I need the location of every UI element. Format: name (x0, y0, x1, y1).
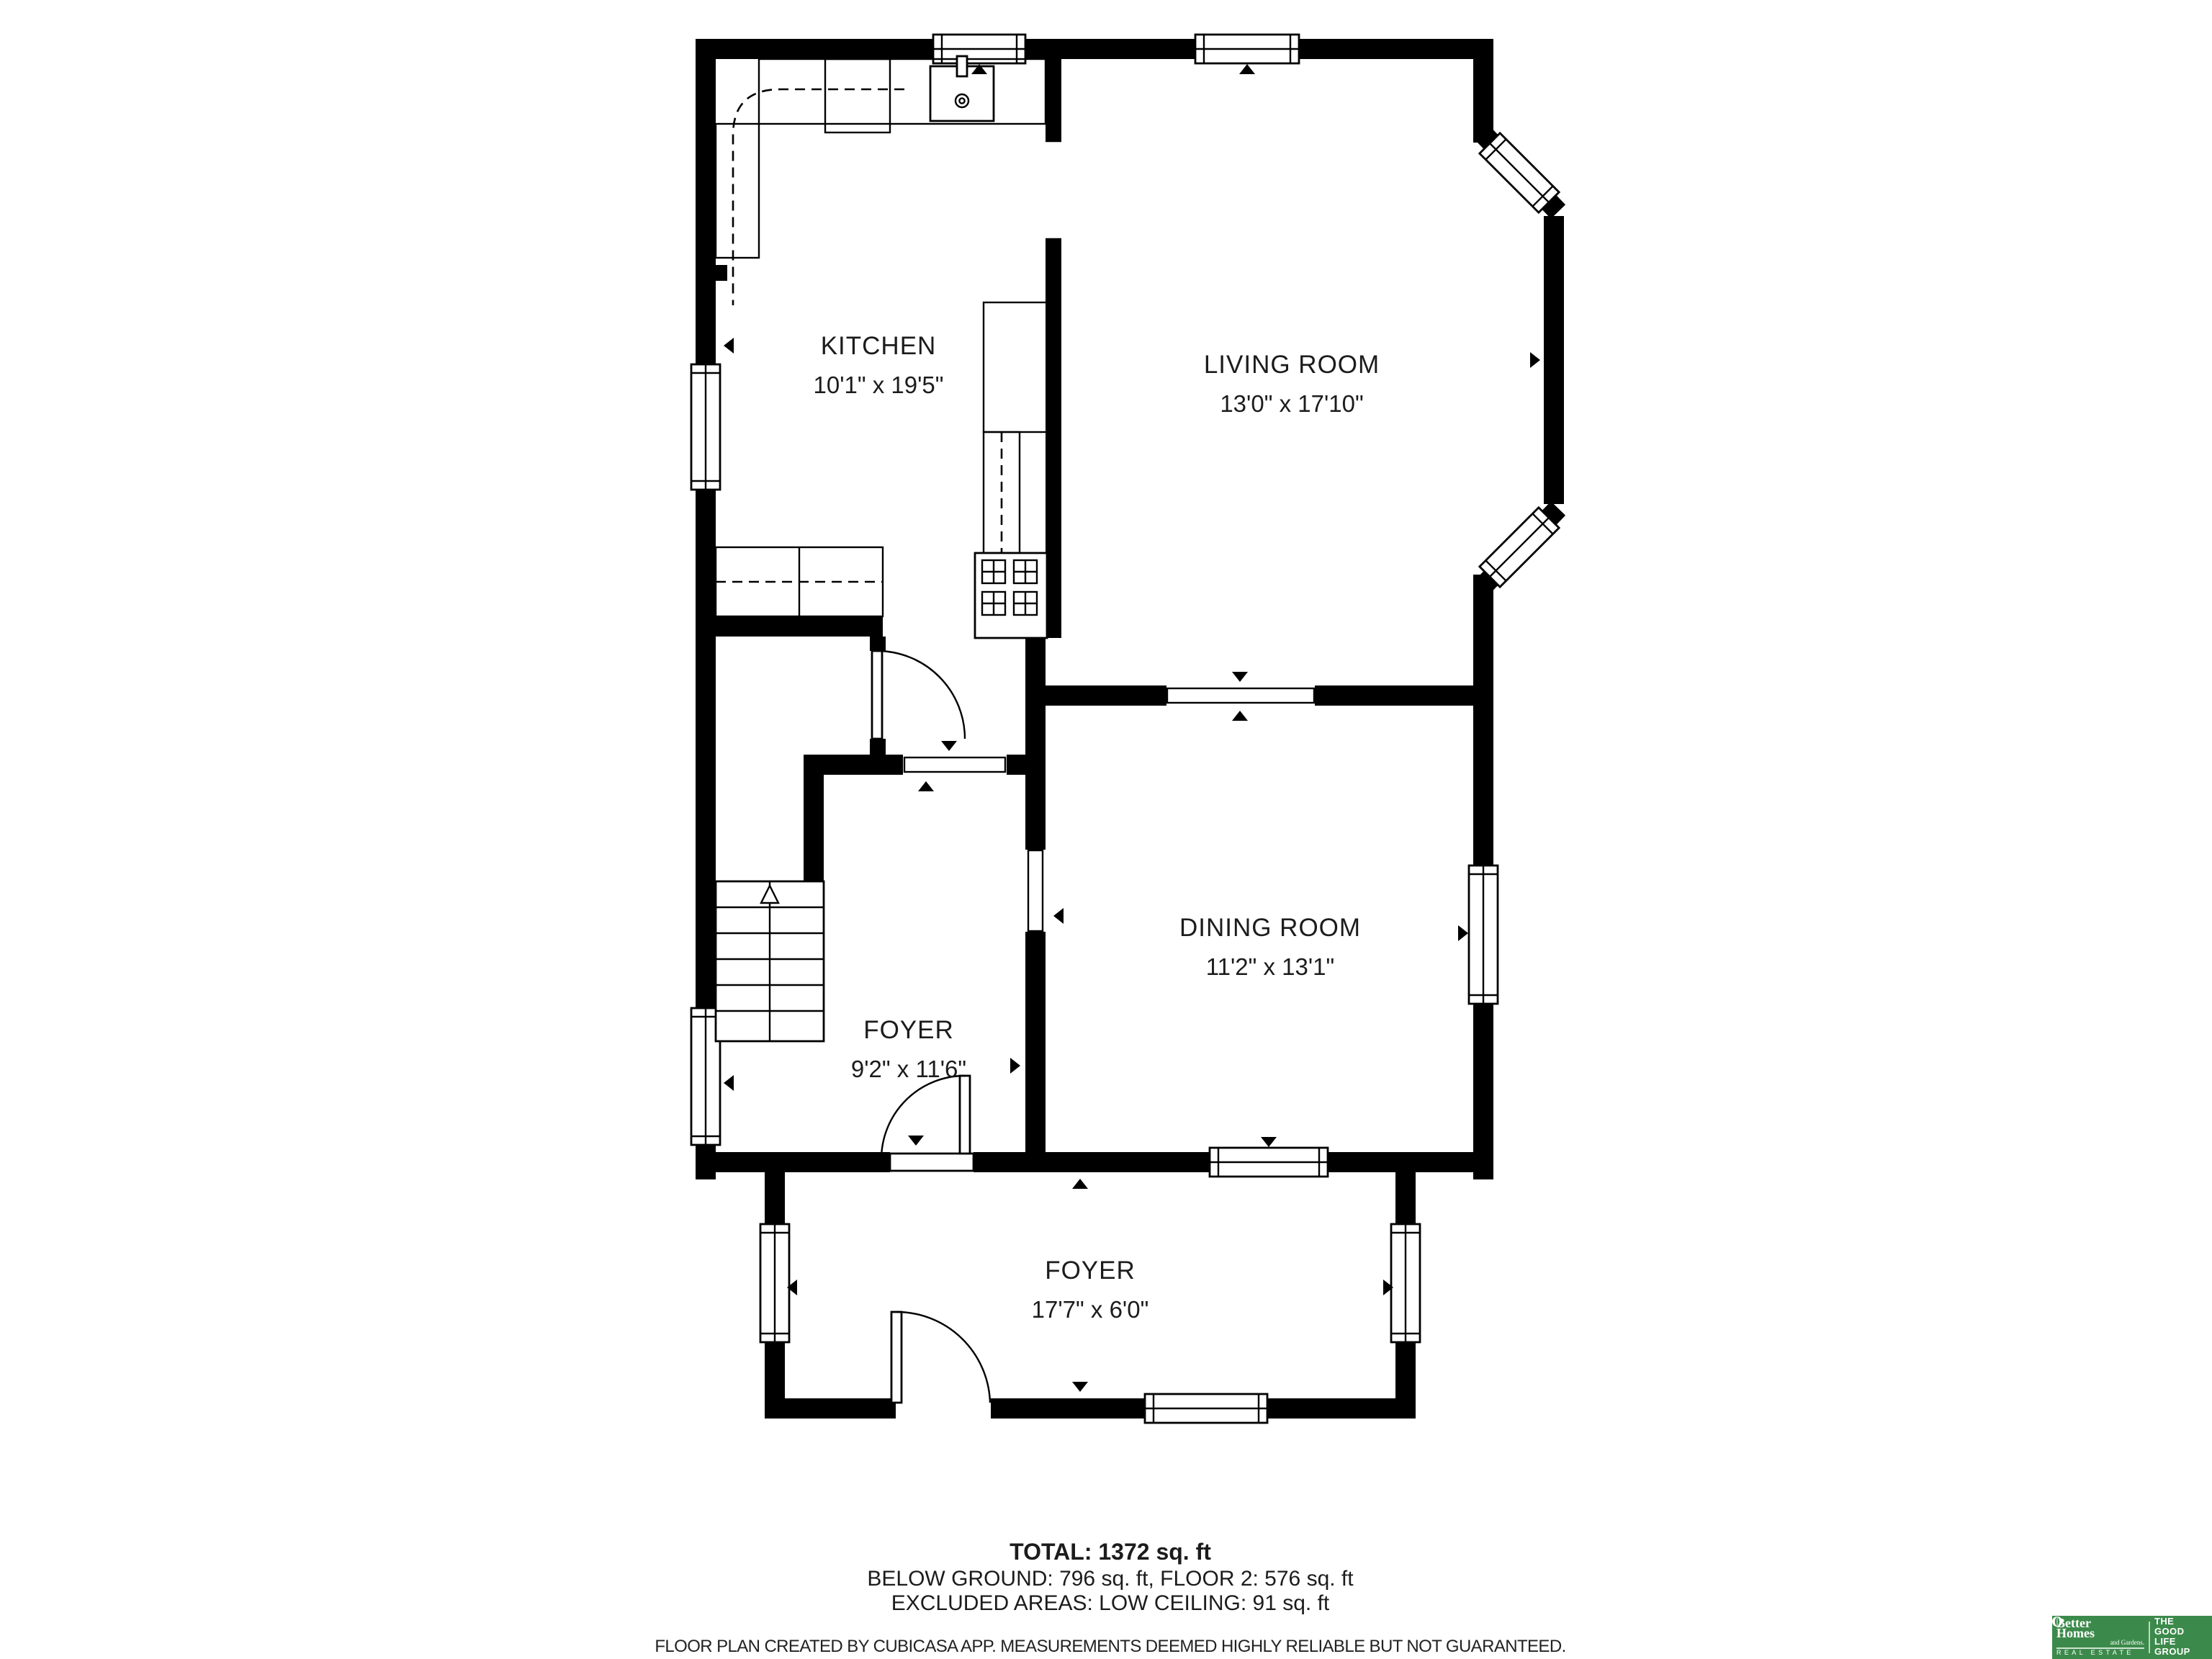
room-label-foyer: FOYER (863, 1016, 954, 1044)
wall-foyer-dining-upper (1025, 638, 1046, 850)
bay-window-lower (1480, 508, 1559, 587)
kitchen-counter-lower (716, 547, 883, 616)
kitchen-counter-top (759, 59, 1046, 124)
wall-notch (716, 265, 727, 281)
floor-plan-svg: KITCHEN 10'1" x 19'5" LIVING ROOM 13'0" … (0, 0, 2212, 1659)
room-label-living-room: LIVING ROOM (1204, 351, 1380, 379)
pantry-cabinet (984, 302, 1047, 432)
room-label-entry-foyer: FOYER (1045, 1256, 1136, 1285)
window (760, 1224, 789, 1342)
window (1145, 1394, 1267, 1423)
window (1391, 1224, 1420, 1342)
window (1469, 866, 1498, 1004)
wall-bottom (696, 1152, 1493, 1172)
room-dim-living-room: 13'0" x 17'10" (1220, 390, 1363, 417)
direction-markers (724, 64, 1540, 1392)
brand-name-line2: Homes (2056, 1629, 2095, 1639)
door-inner-foyer (881, 1076, 974, 1172)
leaf-icon (2052, 1616, 2062, 1627)
kitchen-sink (930, 56, 994, 121)
total-area-text: TOTAL: 1372 sq. ft (1010, 1539, 1211, 1565)
wall-kitchen-south (716, 616, 883, 637)
counter-strip (984, 432, 1020, 553)
area-summary: TOTAL: 1372 sq. ft BELOW GROUND: 796 sq.… (655, 1539, 1565, 1656)
brand-tagline: REAL ESTATE (2056, 1650, 2144, 1656)
group-line-3: GROUP (2154, 1647, 2208, 1658)
brand-logo-right: THE GOOD LIFE GROUP (2154, 1617, 2208, 1658)
disclaimer-text: FLOOR PLAN CREATED BY CUBICASA APP. MEAS… (655, 1637, 1565, 1656)
wall-stair-side (804, 775, 824, 881)
stairs (716, 881, 824, 1041)
wall-foyer-dining-lower (1025, 932, 1046, 1172)
room-label-dining-room: DINING ROOM (1179, 914, 1361, 942)
room-dim-kitchen: 10'1" x 19'5" (814, 372, 944, 398)
wall-closet-jamb-bottom (870, 739, 886, 755)
group-line-2: GOOD LIFE (2154, 1627, 2208, 1647)
room-dim-dining-room: 11'2" x 13'1" (1206, 953, 1335, 980)
walls (696, 39, 1564, 1419)
window (1210, 1148, 1328, 1177)
window (691, 364, 720, 490)
room-dim-foyer: 9'2" x 11'6" (851, 1056, 966, 1082)
stove (975, 553, 1047, 638)
room-dim-entry-foyer: 17'7" x 6'0" (1032, 1296, 1149, 1323)
pass-through-opening (1046, 141, 1061, 239)
bay-window-upper (1480, 133, 1559, 212)
wall-closet-jamb-top (870, 637, 886, 651)
brand-logo: Better Homes and Gardens. REAL ESTATE TH… (2052, 1616, 2212, 1659)
door-front (891, 1312, 991, 1419)
dishwasher (825, 59, 890, 132)
bay-wall-flat (1544, 216, 1564, 504)
group-line-1: THE (2154, 1617, 2208, 1627)
area-breakdown-text: BELOW GROUND: 796 sq. ft, FLOOR 2: 576 s… (867, 1567, 1354, 1591)
room-label-kitchen: KITCHEN (821, 332, 937, 360)
door-closet (870, 651, 965, 739)
brand-logo-left: Better Homes and Gardens. REAL ESTATE (2056, 1619, 2144, 1656)
floor-plan-page: KITCHEN 10'1" x 19'5" LIVING ROOM 13'0" … (0, 0, 2212, 1659)
logo-separator (2149, 1622, 2150, 1653)
windows (691, 35, 1559, 1423)
brand-sub-text: and Gardens. (2056, 1640, 2144, 1645)
excluded-areas-text: EXCLUDED AREAS: LOW CEILING: 91 sq. ft (891, 1591, 1330, 1615)
kitchen-counter-left (716, 124, 759, 258)
window (1195, 35, 1299, 63)
openings (903, 141, 1315, 932)
wall-top (696, 39, 1493, 59)
wall-outer-foyer-bottom (765, 1398, 1416, 1419)
